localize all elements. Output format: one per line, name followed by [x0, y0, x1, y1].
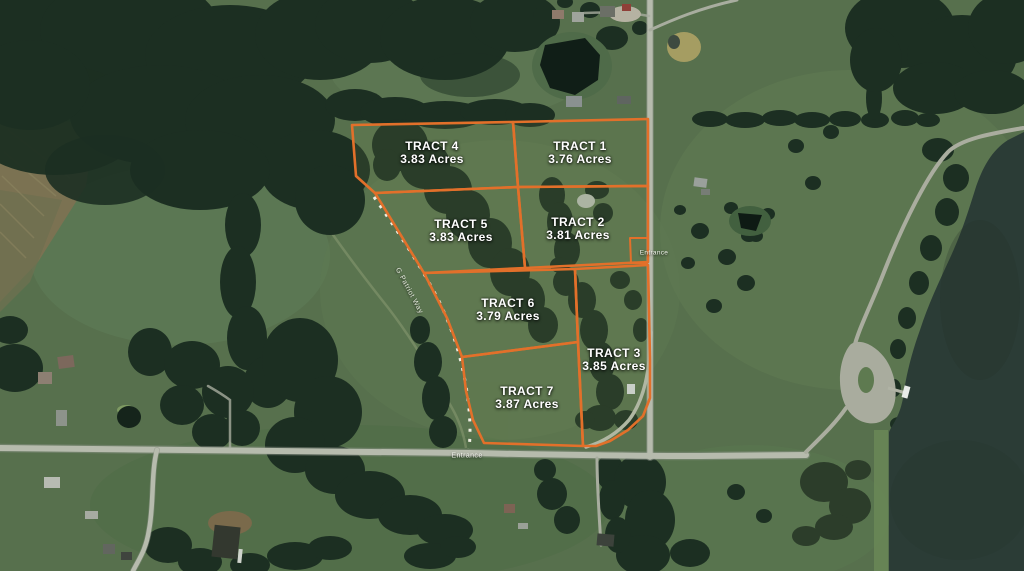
- satellite-imagery-layer: [0, 0, 1024, 571]
- aerial-plat-map: TRACT 1 3.76 Acres TRACT 2 3.81 Acres TR…: [0, 0, 1024, 571]
- pond-farm: [117, 406, 141, 428]
- dam-embankment: [874, 430, 888, 571]
- barn: [211, 525, 240, 560]
